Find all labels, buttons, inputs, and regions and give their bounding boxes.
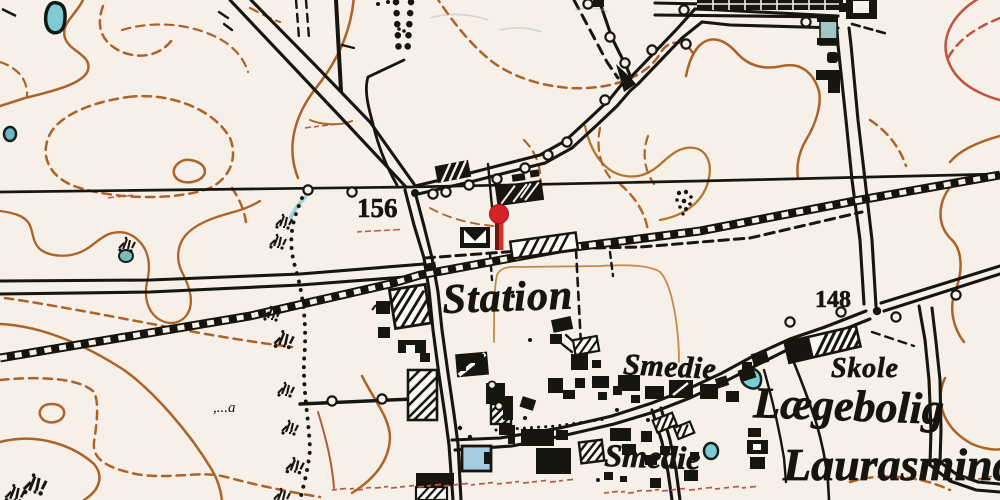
svg-text:148: 148: [815, 287, 851, 313]
svg-text:,...a: ,...a: [213, 400, 236, 416]
svg-text:Laurasminde: Laurasminde: [782, 439, 1000, 490]
svg-text:Skole: Skole: [831, 353, 899, 384]
svg-text:Lægebolig: Lægebolig: [752, 378, 945, 434]
svg-text:156: 156: [357, 193, 398, 223]
svg-text:Station: Station: [442, 272, 574, 323]
svg-text:Smedie: Smedie: [623, 348, 718, 386]
svg-text:Smedie: Smedie: [604, 437, 701, 476]
